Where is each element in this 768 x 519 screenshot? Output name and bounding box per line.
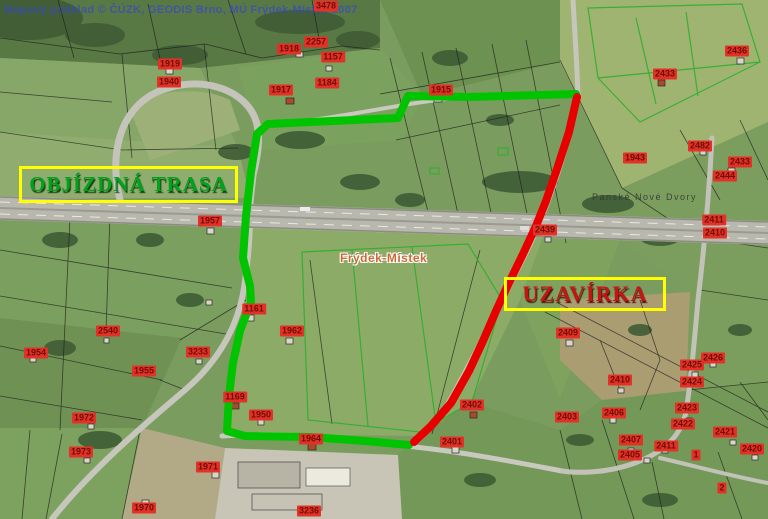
- parcel-number: 2: [717, 483, 726, 494]
- parcel-number: 1955: [132, 366, 156, 377]
- parcel-number: 1940: [157, 77, 181, 88]
- parcel-number: 1918: [277, 44, 301, 55]
- parcel-number: 2410: [703, 228, 727, 239]
- parcel-number: 2424: [680, 377, 704, 388]
- parcel-number: 1950: [249, 410, 273, 421]
- parcel-number: 2482: [688, 141, 712, 152]
- parcel-number: 1973: [69, 447, 93, 458]
- parcel-number: 1971: [196, 462, 220, 473]
- parcel-number: 1: [691, 450, 700, 461]
- parcel-number: 1970: [132, 503, 156, 514]
- parcel-number: 1161: [242, 304, 266, 315]
- parcel-number: 2401: [440, 437, 464, 448]
- parcel-number: 1962: [280, 326, 304, 337]
- parcel-number: 2420: [740, 444, 764, 455]
- parcel-number: 2411: [654, 441, 678, 452]
- parcel-number: 2411: [702, 215, 726, 226]
- parcel-number: 3233: [186, 347, 210, 358]
- parcel-number: 2406: [602, 408, 626, 419]
- place-label: Frýdek-Místek: [340, 251, 427, 265]
- parcel-number: 2444: [713, 171, 737, 182]
- parcel-number: 3236: [297, 506, 321, 517]
- closure-label-box: UZAVÍRKA: [504, 277, 666, 311]
- parcel-number: 2402: [460, 400, 484, 411]
- parcel-number: 2423: [675, 403, 699, 414]
- parcel-number: 2257: [304, 37, 328, 48]
- parcel-number: 1184: [315, 78, 339, 89]
- map-canvas[interactable]: Mapový podklad © ČÚZK, GEODIS Brno, MÚ F…: [0, 0, 768, 519]
- parcel-number: 2436: [725, 46, 749, 57]
- parcel-number: 1964: [299, 434, 323, 445]
- parcel-number: 2433: [728, 157, 752, 168]
- parcel-number: 2425: [680, 360, 704, 371]
- parcel-number: 2410: [608, 375, 632, 386]
- parcel-number: 3478: [314, 1, 338, 12]
- parcel-number: 1943: [623, 153, 647, 164]
- parcel-number: 1972: [72, 413, 96, 424]
- parcel-number: 1954: [24, 348, 48, 359]
- detour-label: OBJÍZDNÁ TRASA: [29, 172, 228, 197]
- parcel-number: 1915: [429, 85, 453, 96]
- parcel-number: 2439: [533, 225, 557, 236]
- parcel-number: 1957: [198, 216, 222, 227]
- place-label: Panské Nové Dvory: [592, 192, 697, 202]
- parcel-number: 2405: [618, 450, 642, 461]
- parcel-number: 2540: [96, 326, 120, 337]
- parcel-number: 2422: [671, 419, 695, 430]
- detour-label-box: OBJÍZDNÁ TRASA: [19, 166, 238, 203]
- parcel-number: 2433: [653, 69, 677, 80]
- parcel-number: 2426: [701, 353, 725, 364]
- map-copyright: Mapový podklad © ČÚZK, GEODIS Brno, MÚ F…: [4, 4, 357, 16]
- parcel-number: 1169: [223, 392, 247, 403]
- parcel-number: 2409: [556, 328, 580, 339]
- parcel-number: 2421: [713, 427, 737, 438]
- parcel-number: 2407: [619, 435, 643, 446]
- parcel-number: 2403: [555, 412, 579, 423]
- parcel-number: 1919: [158, 59, 182, 70]
- parcel-number: 1917: [269, 85, 293, 96]
- parcel-number: 1157: [321, 52, 345, 63]
- closure-label: UZAVÍRKA: [523, 281, 648, 307]
